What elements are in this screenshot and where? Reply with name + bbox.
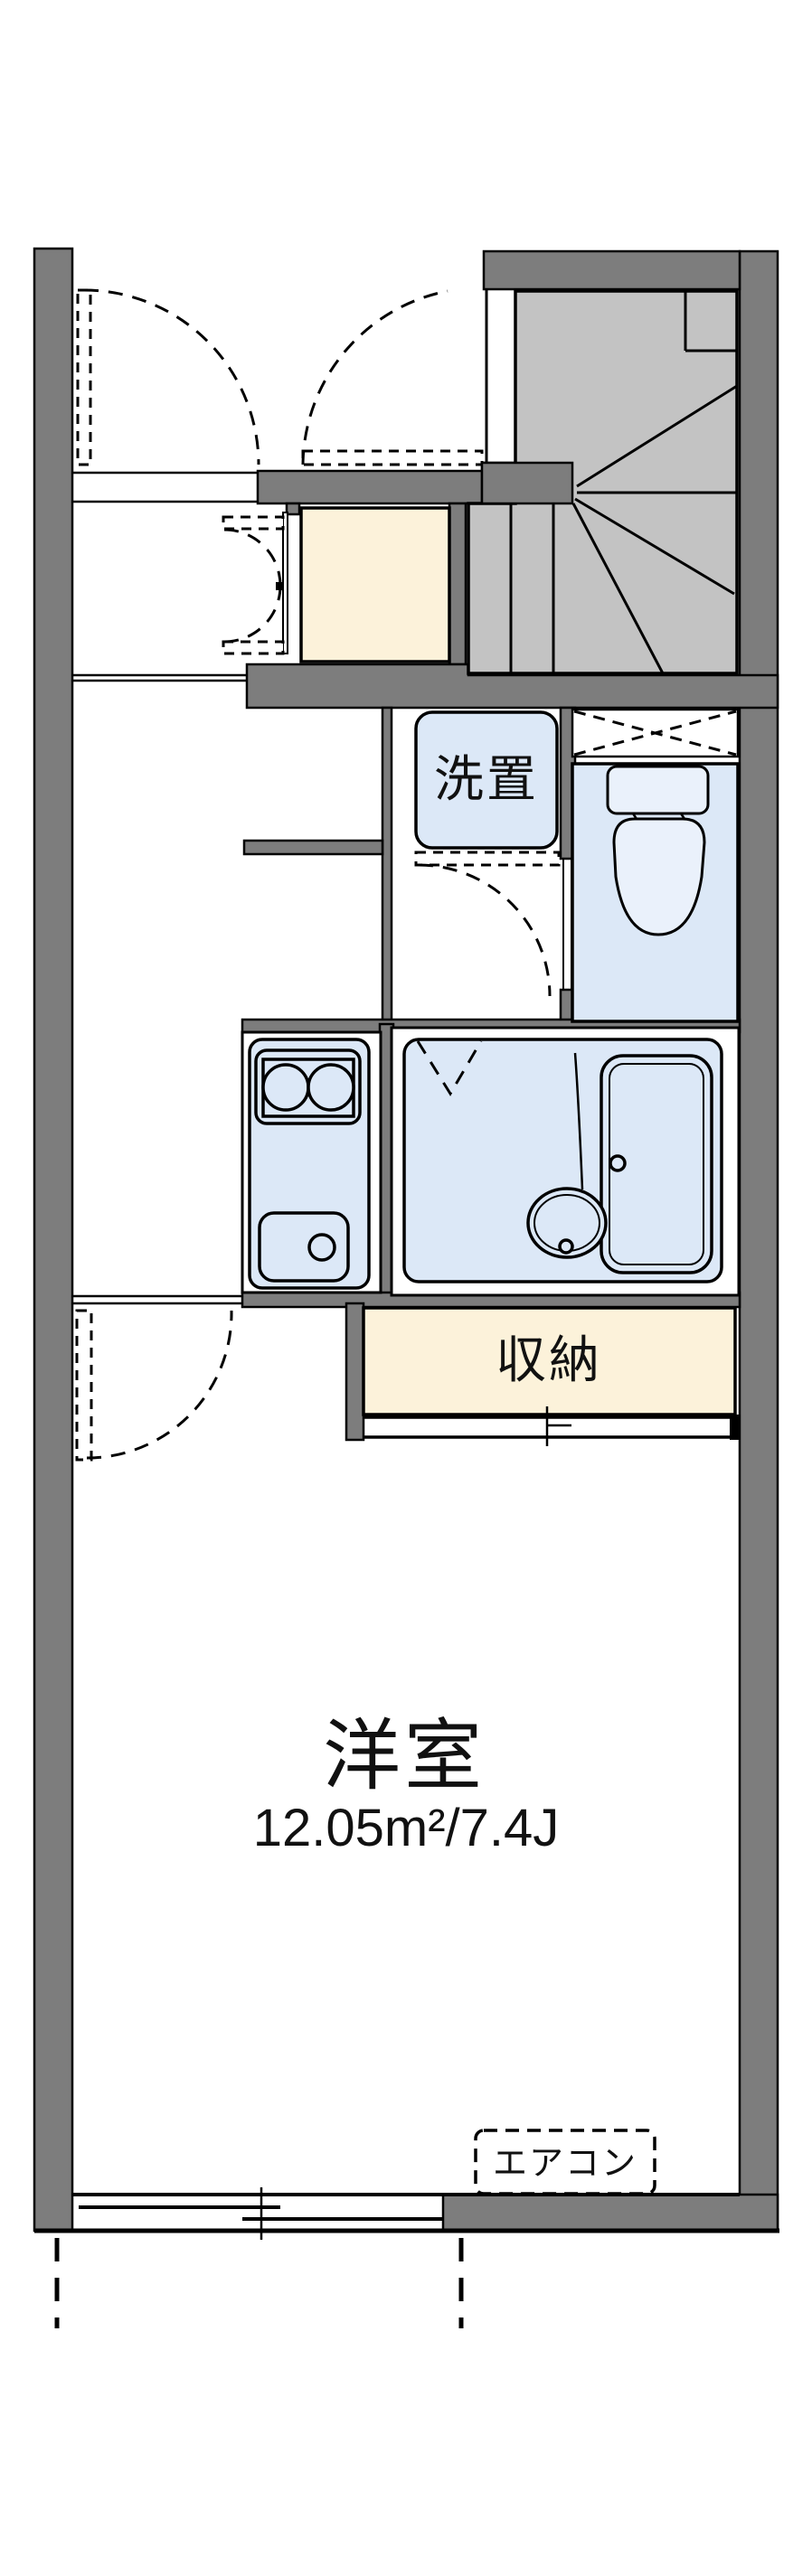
closet-door-arc-top (224, 530, 280, 586)
stove-burner-left (263, 1065, 308, 1110)
wall-washroom-left (382, 708, 392, 1024)
toilet-room (572, 710, 738, 1021)
floor-plan-page: 洗置 (0, 0, 812, 2576)
sink-drain (309, 1235, 335, 1260)
washer-area-label: 洗置 (434, 751, 539, 807)
stove-burner-right (308, 1065, 354, 1110)
stair-winder-stub-wall (482, 463, 572, 503)
bathroom (392, 1028, 739, 1295)
wall-storage-left (346, 1303, 364, 1440)
wall-right (740, 251, 778, 2231)
western-room-area-label: 12.05m²/7.4J (253, 1799, 560, 1857)
wall-left (34, 249, 72, 2231)
wall-stair-top (484, 251, 740, 289)
washroom-door-arc (419, 865, 550, 996)
storage-label: 収納 (496, 1331, 602, 1388)
left-exterior-door-leaf (78, 290, 90, 465)
unit-entrance-door-arc (303, 291, 448, 465)
bathtub-drain (610, 1156, 625, 1170)
wall-alcove-stub (244, 841, 382, 854)
wash-basin-drain (560, 1240, 572, 1253)
floor-plan: 洗置 (0, 0, 812, 2576)
wall-genkan-stair (449, 503, 466, 664)
wall-entry-notch (287, 503, 299, 514)
storage: 収納 (364, 1308, 740, 1446)
staircase (468, 291, 737, 673)
unit-entrance-door-leaf (303, 451, 482, 465)
kitchen (242, 1032, 381, 1293)
closet-door-leaf-top (223, 517, 283, 529)
western-room-label: 洋室 (323, 1713, 486, 1800)
storage-slider-jamb (730, 1415, 740, 1440)
washroom: 洗置 (416, 712, 571, 996)
closet-door-arc-bottom (224, 586, 280, 642)
room-door-arc (87, 1311, 231, 1458)
closet-door-leaf-bottom (223, 642, 283, 653)
washroom-door-leaf (416, 852, 559, 865)
left-exterior-door-arc (84, 290, 259, 465)
air-conditioner-label: エアコン (493, 2145, 637, 2183)
room-door-leaf (77, 1311, 91, 1460)
toilet-tank (608, 766, 708, 813)
genkan-floor (301, 508, 449, 662)
wall-window-right (443, 2195, 778, 2231)
genkan (72, 508, 449, 681)
